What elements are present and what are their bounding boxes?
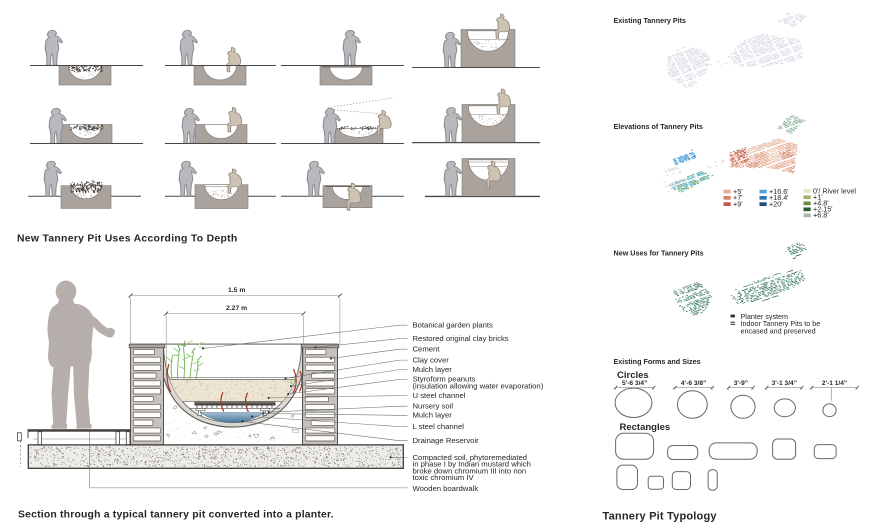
svg-text:Rectangles: Rectangles	[620, 422, 671, 433]
svg-text:Existing Tannery Pits: Existing Tannery Pits	[614, 16, 687, 25]
svg-text:2.27 m: 2.27 m	[226, 305, 247, 312]
svg-text:L steel channel: L steel channel	[413, 422, 465, 431]
svg-text:Restored original clay bricks: Restored original clay bricks	[413, 334, 509, 343]
svg-text:Section through a typical tann: Section through a typical tannery pit co…	[18, 510, 334, 521]
svg-text:New Tannery Pit Uses According: New Tannery Pit Uses According To Depth	[17, 234, 238, 245]
svg-text:Drainage Reservoir: Drainage Reservoir	[413, 436, 480, 445]
svg-text:Existing Forms and Sizes: Existing Forms and Sizes	[614, 357, 701, 366]
svg-text:5'-6 3/4”: 5'-6 3/4”	[622, 380, 647, 387]
svg-text:3'-9”: 3'-9”	[734, 380, 748, 387]
svg-text:New Uses for Tannery Pits: New Uses for Tannery Pits	[614, 248, 704, 257]
svg-text:encased and preserved: encased and preserved	[741, 327, 816, 336]
svg-text:Elevations of Tannery Pits: Elevations of Tannery Pits	[614, 122, 703, 131]
svg-text:Clay cover: Clay cover	[413, 355, 450, 364]
svg-text:+6.8': +6.8'	[813, 211, 829, 220]
svg-text:1.5 m: 1.5 m	[228, 287, 245, 294]
svg-text:+9': +9'	[733, 200, 743, 209]
svg-text:Botanical garden plants: Botanical garden plants	[413, 320, 494, 329]
svg-text:+20': +20'	[769, 200, 783, 209]
svg-text:Mulch layer: Mulch layer	[413, 365, 453, 374]
svg-text:Tannery Pit Typology: Tannery Pit Typology	[603, 511, 718, 523]
svg-text:2'-1 1/4”: 2'-1 1/4”	[822, 380, 847, 387]
svg-text:toxic chromium IV: toxic chromium IV	[413, 473, 475, 482]
svg-text:4'-6 3/8”: 4'-6 3/8”	[681, 380, 706, 387]
svg-text:3'-1 3/4”: 3'-1 3/4”	[772, 380, 797, 387]
svg-text:Cement: Cement	[413, 344, 441, 353]
svg-text:U steel channel: U steel channel	[413, 391, 466, 400]
svg-text:Mulch layer: Mulch layer	[413, 411, 453, 420]
svg-text:Nursery soil: Nursery soil	[413, 401, 454, 410]
svg-text:(insulation allowing water eva: (insulation allowing water evaporation)	[413, 382, 544, 391]
svg-text:Circles: Circles	[617, 370, 649, 381]
svg-text:Wooden boardwalk: Wooden boardwalk	[413, 484, 479, 493]
